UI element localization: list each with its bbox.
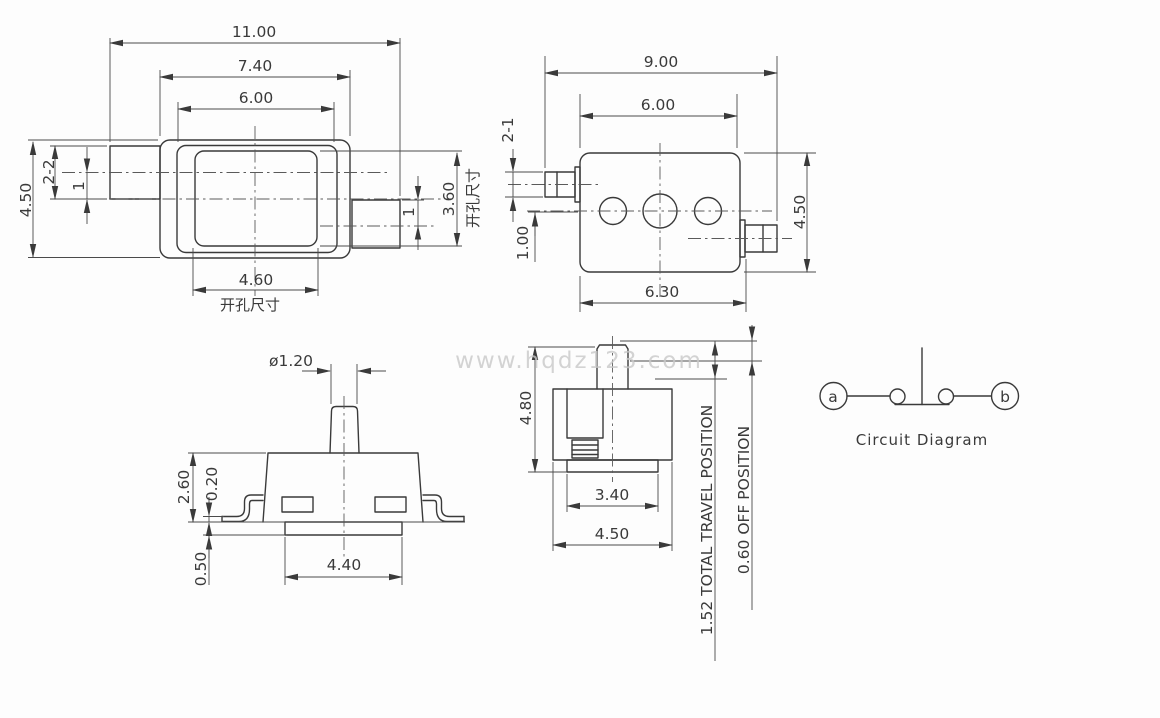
bottom-view-outline: [545, 153, 777, 272]
bottom-view-centerlines: [508, 143, 792, 298]
dim-body-width: 6.00: [641, 96, 676, 114]
dim-stem-diameter: ø1.20: [269, 352, 313, 370]
dim-off-position-label: 0.60 OFF POSITION: [735, 426, 753, 574]
dim-plate-width: 3.40: [595, 486, 630, 504]
bottom-view-extension-lines: [505, 56, 816, 312]
circuit-symbol: [820, 348, 1019, 410]
bottom-view: 9.00 6.00 4.50 6.30 2-1 1.00: [499, 53, 816, 312]
dim-body-height: 4.50: [791, 195, 809, 230]
dim-tab-spec-left: 2-2: [40, 159, 58, 184]
technical-drawing-sheet: 11.00 7.40 6.00 4.50 2-2 1 3.60 开孔尺寸 1 4…: [0, 0, 1160, 718]
cutout-label-bottom: 开孔尺寸: [220, 296, 280, 314]
dim-body-height: 2.60: [175, 470, 193, 505]
dim-overall-width: 9.00: [644, 53, 679, 71]
circuit-diagram: a b Circuit Diagram: [820, 348, 1019, 449]
drawing-svg: 11.00 7.40 6.00 4.50 2-2 1 3.60 开孔尺寸 1 4…: [0, 0, 1160, 718]
dim-overall-width: 11.00: [232, 23, 276, 41]
dim-tab-half-right: 1: [400, 207, 418, 217]
cutout-label-right: 开孔尺寸: [464, 168, 482, 228]
side-view-dimension-lines: [535, 325, 752, 661]
dim-body-height: 4.50: [17, 183, 35, 218]
dim-base-height: 0.50: [192, 552, 210, 587]
dim-travel-label: 1.52 TOTAL TRAVEL POSITION: [698, 405, 716, 636]
dim-lead-thickness: 0.20: [203, 467, 221, 502]
circuit-caption: Circuit Diagram: [856, 431, 988, 449]
terminal-b-label: b: [1000, 388, 1010, 406]
dim-cutout-height: 3.60: [440, 182, 458, 217]
watermark-text: www.hqdz123.com: [455, 348, 703, 374]
dim-total-height: 4.80: [517, 391, 535, 426]
dim-body-width: 6.00: [239, 89, 274, 107]
terminal-a-label: a: [828, 388, 838, 406]
front-view: ø1.20 2.60 0.20 0.50 4.40: [175, 352, 465, 586]
front-view-dimension-lines: [193, 371, 402, 585]
dim-tab-spec: 2-1: [499, 117, 517, 142]
dim-flange-width: 7.40: [238, 57, 273, 75]
dim-tab-half-left: 1: [70, 181, 88, 191]
plan-view: 11.00 7.40 6.00 4.50 2-2 1 3.60 开孔尺寸 1 4…: [17, 23, 482, 314]
dim-base-width: 4.40: [327, 556, 362, 574]
dim-tab-offset: 1.00: [514, 226, 532, 261]
front-view-extension-lines: [188, 364, 465, 585]
side-view: 4.80 3.40 4.50 1.52 TOTAL TRAVEL POSITIO…: [517, 325, 762, 661]
front-view-outline: [222, 407, 464, 536]
dim-base-width: 6.30: [645, 283, 680, 301]
dim-cutout-width: 4.60: [239, 271, 274, 289]
dim-body-width: 4.50: [595, 525, 630, 543]
